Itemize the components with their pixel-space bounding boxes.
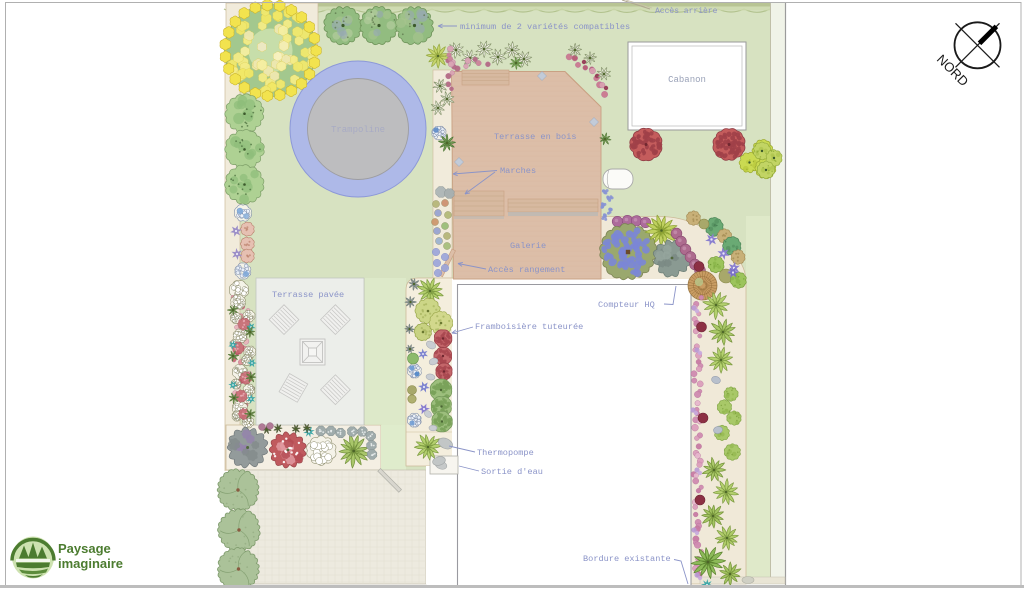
svg-text:Terrasse en bois: Terrasse en bois [494,132,577,142]
svg-text:imaginaire: imaginaire [58,556,123,571]
svg-text:Sortie d'eau: Sortie d'eau [481,467,543,477]
svg-text:Trampoline: Trampoline [331,125,385,135]
svg-text:minimum de 2 variétés compatib: minimum de 2 variétés compatibles [460,22,630,32]
svg-text:Compteur HQ: Compteur HQ [598,300,655,310]
svg-text:Marches: Marches [500,166,536,176]
svg-text:Accès arrière: Accès arrière [655,7,718,16]
svg-text:Cabanon: Cabanon [668,75,706,85]
svg-text:Thermopompe: Thermopompe [477,448,534,458]
svg-text:Accès rangement: Accès rangement [488,265,565,275]
svg-text:Terrasse pavée: Terrasse pavée [272,290,344,300]
svg-text:Paysage: Paysage [58,541,111,556]
svg-text:Bordure existante: Bordure existante [583,554,671,564]
svg-text:Framboisière tuteurée: Framboisière tuteurée [475,322,583,332]
svg-text:Galerie: Galerie [510,241,546,251]
